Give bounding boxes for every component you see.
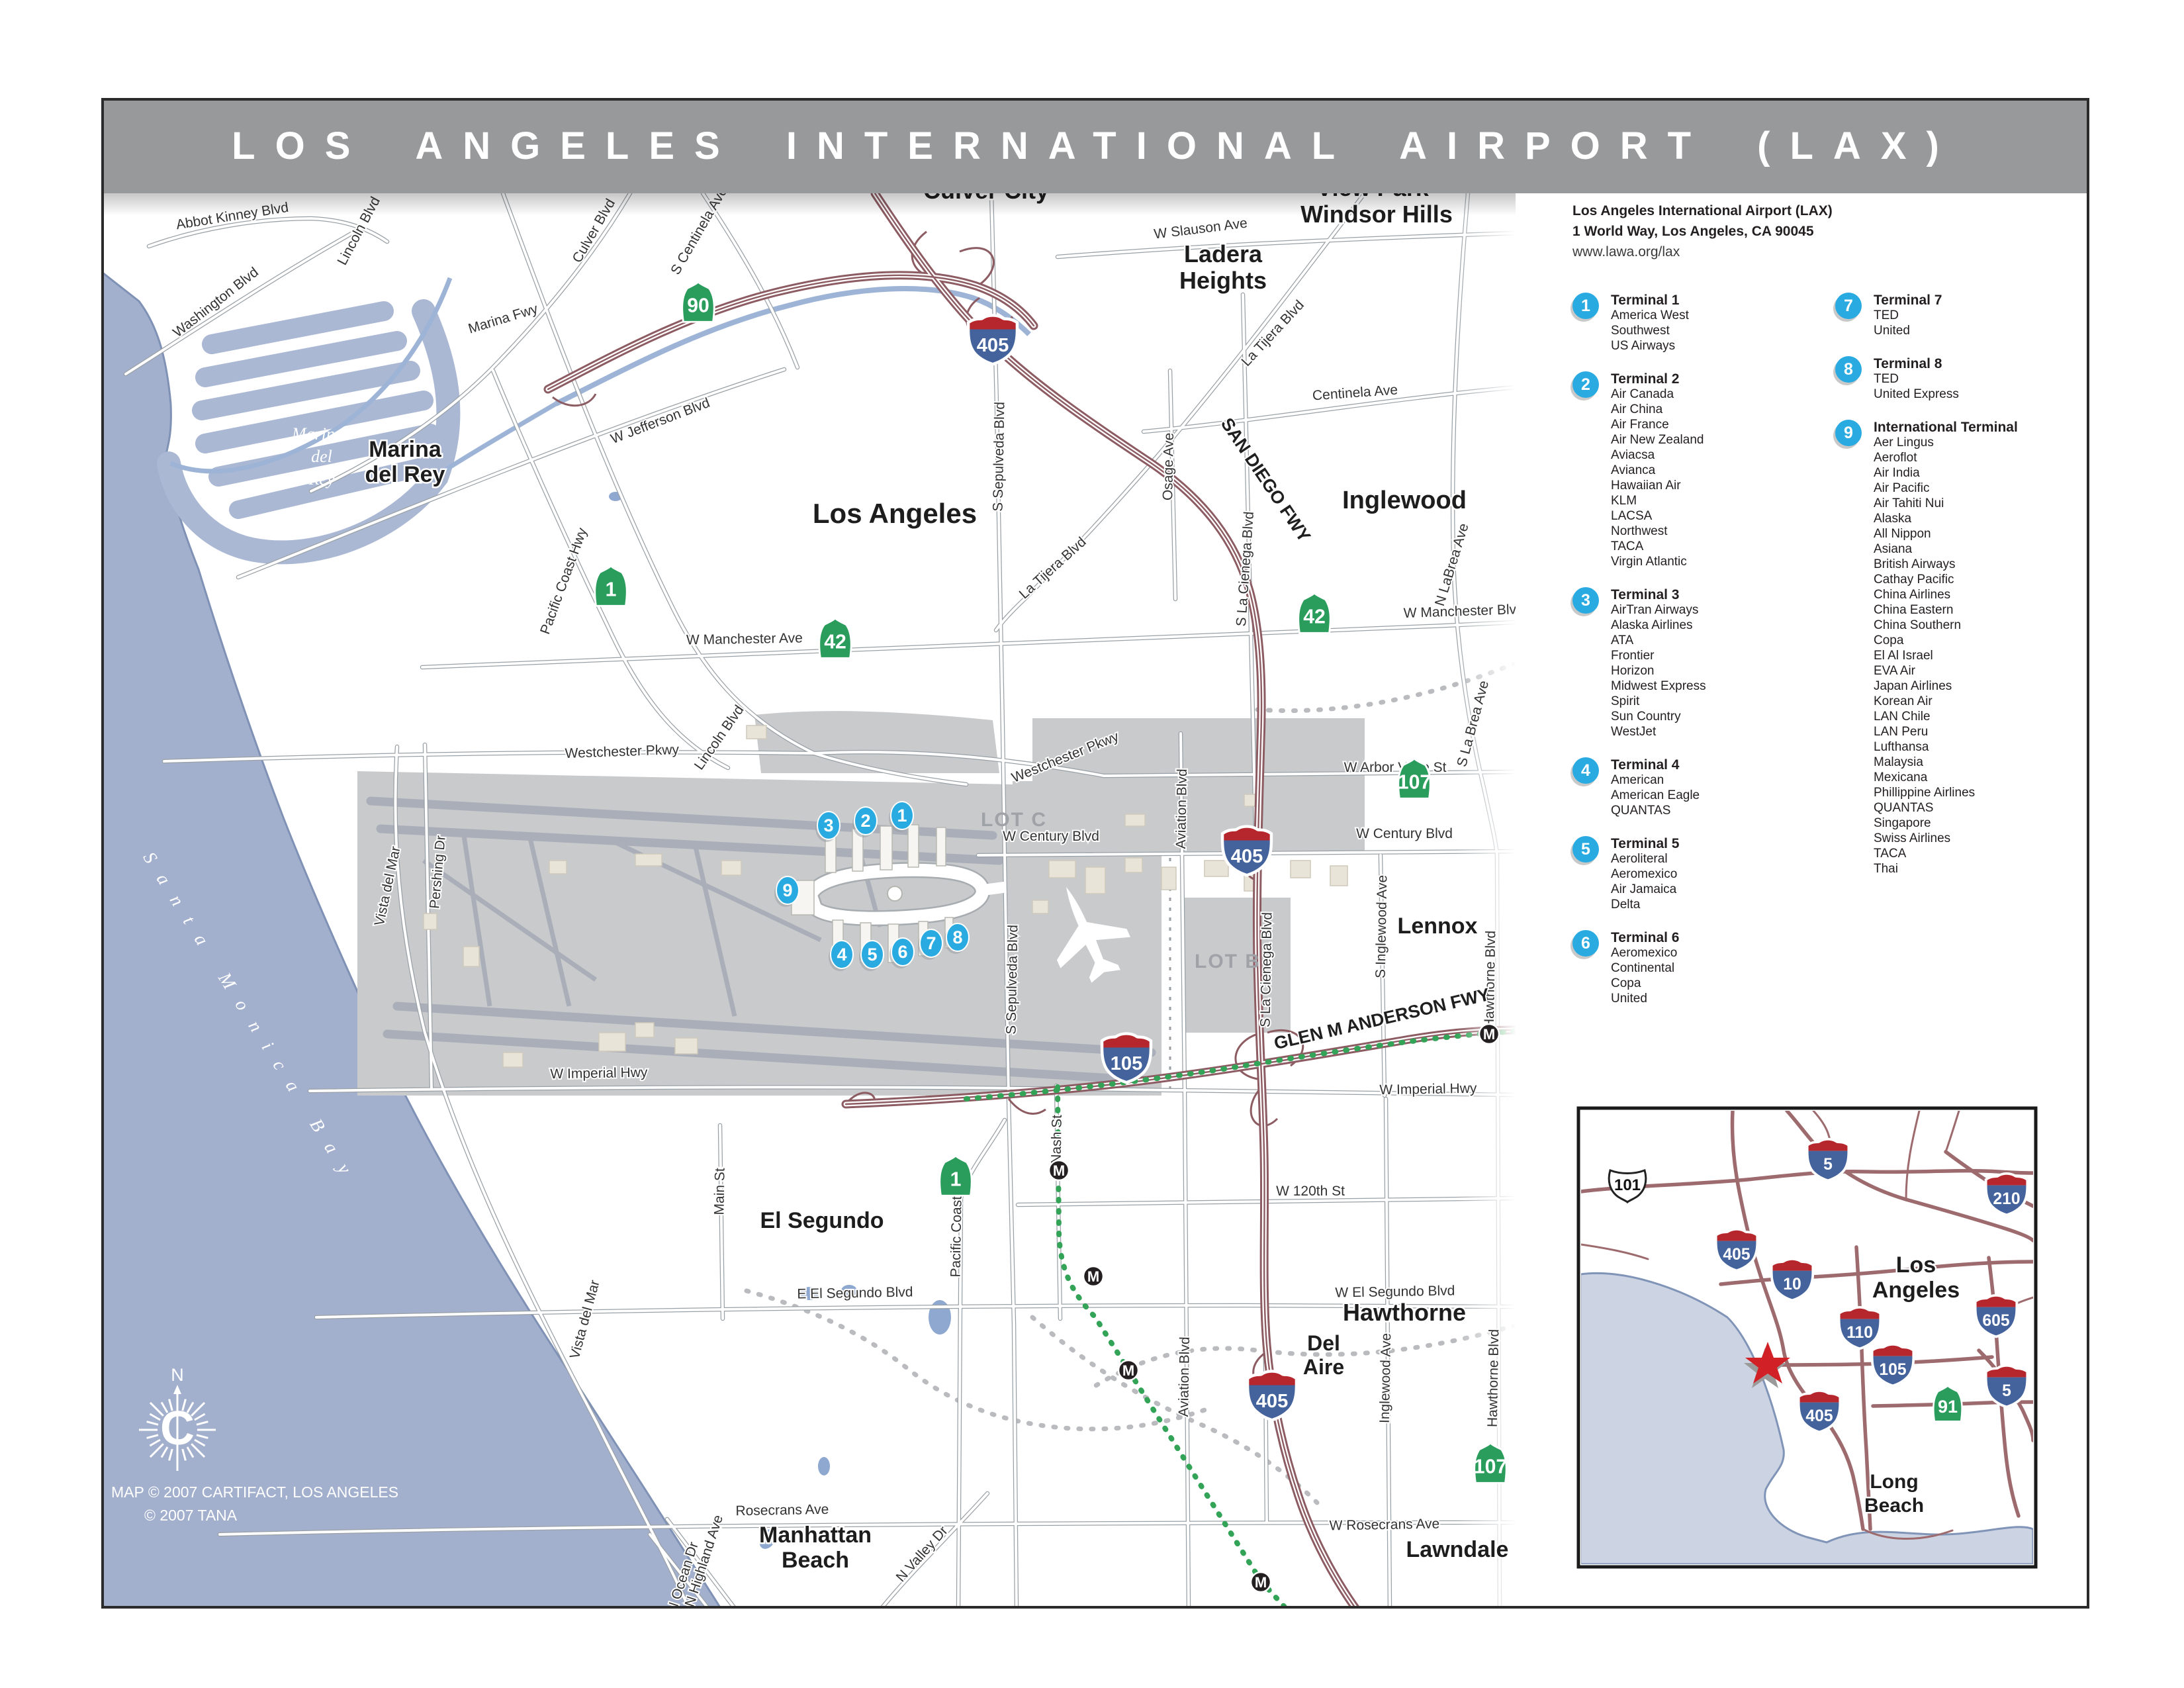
street-label: Main St — [711, 1168, 727, 1215]
street-label: Culver Blvd — [570, 197, 619, 265]
street-label: W Century Blvd — [1003, 829, 1099, 844]
airline-name: Aer Lingus — [1874, 435, 2018, 450]
airline-name: Avianca — [1611, 463, 1704, 478]
terminal-marker-number: 5 — [867, 945, 877, 964]
terminal-name: Terminal 8 — [1874, 356, 1959, 371]
interstate-shield: 405 — [1800, 1392, 1839, 1431]
airport-website: www.lawa.org/lax — [1572, 242, 1833, 262]
creeks — [171, 278, 1029, 475]
terminal-info: Terminal 4AmericanAmerican EagleQUANTAS — [1611, 757, 1700, 818]
airline-name: WestJet — [1611, 724, 1706, 739]
airline-name: Air China — [1611, 402, 1704, 417]
street-label: W Arbor Vitae St — [1344, 760, 1447, 775]
street-label: N Highland Ave — [682, 1513, 726, 1609]
metro-station: M — [1479, 1024, 1499, 1044]
street-label: W Slauson Ave — [1153, 215, 1248, 242]
airline-name: British Airways — [1874, 557, 2018, 572]
shield-number: 90 — [687, 295, 709, 316]
airline-name: TACA — [1611, 539, 1704, 554]
freeways — [548, 193, 1516, 1610]
terminal-name: Terminal 3 — [1611, 587, 1706, 602]
street-label: S La Cienega Blvd — [1234, 511, 1257, 627]
terminal-markers: 123456789 — [774, 802, 969, 971]
airline-name: Thai — [1874, 861, 2018, 876]
airline-name: Malaysia — [1874, 755, 2018, 770]
street-label: Inglewood Ave — [1377, 1333, 1394, 1424]
airline-name: Air France — [1611, 417, 1704, 432]
shield-number: 5 — [1823, 1156, 1833, 1174]
state-route-shield: 107 — [1474, 1444, 1507, 1482]
inset-city-label: Angeles — [1872, 1278, 1960, 1303]
metro-station-letter: M — [1122, 1362, 1134, 1379]
shield-number: 107 — [1398, 771, 1431, 793]
airplane-icon — [1031, 871, 1141, 992]
terminal-entry: 8Terminal 8TEDUnited Express — [1835, 356, 2080, 402]
airline-name: Alaska Airlines — [1611, 618, 1706, 633]
city-label: Windsor Hills — [1300, 201, 1453, 228]
terminal-info: Terminal 5AeroliteralAeromexicoAir Jamai… — [1611, 836, 1679, 912]
terminal-entry: 2Terminal 2Air CanadaAir ChinaAir France… — [1572, 371, 1817, 569]
metro-station: M — [1251, 1572, 1271, 1592]
airline-name: Copa — [1611, 976, 1679, 991]
freeway-ramps — [553, 232, 1303, 1390]
metro-station: M — [1118, 1360, 1138, 1380]
inset-roads — [1581, 1111, 2033, 1539]
terminal-entry: 7Terminal 7TEDUnited — [1835, 293, 2080, 338]
airline-name: Cathay Pacific — [1874, 572, 2018, 587]
airline-name: Aeroliteral — [1611, 851, 1679, 867]
airline-name: El Al Israel — [1874, 648, 2018, 663]
city-label: Hawthorne — [1343, 1299, 1466, 1326]
metro-line — [966, 1031, 1516, 1610]
street-label: Pershing Dr — [427, 835, 449, 909]
airline-name: Aeromexico — [1611, 867, 1679, 882]
street-label: Vista del Mar — [567, 1278, 603, 1360]
airline-name: Southwest — [1611, 323, 1689, 338]
airline-name: Air Pacific — [1874, 481, 2018, 496]
inset-map: LosAngelesLongBeach 54051021011060510554… — [1578, 1108, 2036, 1567]
street-label: W Imperial Hwy — [550, 1065, 648, 1082]
parking-lot-label: LOT C — [981, 809, 1047, 831]
street-label: N LaBrea Ave — [1432, 522, 1472, 608]
street-label: Hawthorne Blvd — [1482, 931, 1499, 1029]
sidebar-info: Los Angeles International Airport (LAX) … — [1572, 201, 1833, 262]
interstate-shield: 405 — [1717, 1231, 1756, 1270]
street-label: Pacific Coast Hwy — [537, 526, 590, 636]
terminal-marker-number: 4 — [837, 945, 846, 964]
street-label: W Jefferson Blvd — [609, 395, 712, 447]
shield-number: 101 — [1614, 1176, 1641, 1194]
city-label: El Segundo — [760, 1208, 884, 1233]
boundaries — [747, 663, 1516, 1503]
airline-name: Air Jamaica — [1611, 882, 1679, 897]
shield-number: 405 — [1256, 1391, 1289, 1412]
water-label: del — [311, 447, 332, 466]
metro-station-letter: M — [1053, 1162, 1065, 1179]
airline-name: Air New Zealand — [1611, 432, 1704, 447]
airline-name: Phillippine Airlines — [1874, 785, 2018, 800]
terminal-marker-number: 1 — [897, 806, 907, 825]
terminal-number-badge: 8 — [1835, 356, 1862, 383]
city-label: del Rey — [365, 462, 445, 487]
terminal-entry: 1Terminal 1America WestSouthwestUS Airwa… — [1572, 293, 1817, 353]
airline-name: United Express — [1874, 387, 1959, 402]
copyright-line1: MAP © 2007 CARTIFACT, LOS ANGELES — [111, 1483, 398, 1501]
lot-labels: LOT CLOT B — [981, 809, 1261, 972]
street-label: Marina Fwy — [467, 301, 540, 337]
shield-number: 605 — [1982, 1312, 2009, 1330]
interstate-shield: 105 — [1103, 1035, 1149, 1081]
airline-name: Sun Country — [1611, 709, 1706, 724]
street-label: E El Segundo Blvd — [797, 1284, 913, 1301]
street-label: Centinela Ave — [1312, 383, 1398, 404]
terminal-marker: 9 — [774, 876, 799, 907]
street-label: Lincoln Blvd — [335, 195, 383, 268]
interstate-shield: 405 — [1249, 1373, 1295, 1419]
terminal-marker-number: 8 — [952, 927, 962, 947]
street-label: La Tijera Blvd — [1017, 534, 1089, 602]
street-label: W El Segundo Blvd — [1335, 1283, 1455, 1300]
airline-name: China Southern — [1874, 618, 2018, 633]
street-label: S Sepul­veda Blvd — [991, 402, 1008, 512]
metro-station: M — [1083, 1266, 1103, 1286]
terminal-name: Terminal 5 — [1611, 836, 1679, 851]
airline-name: Air India — [1874, 465, 2018, 481]
shield-number: 42 — [1303, 606, 1326, 628]
street-label: W Manchester Blvd — [1403, 602, 1524, 621]
terminal-name: Terminal 4 — [1611, 757, 1700, 773]
terminal-info: Terminal 8TEDUnited Express — [1874, 356, 1959, 402]
street-label: W Manchester Ave — [686, 630, 803, 647]
inset-city-label: Beach — [1864, 1495, 1924, 1517]
roads — [126, 193, 1516, 1610]
interstate-shield: 5 — [1987, 1367, 2026, 1406]
terminal-name: Terminal 1 — [1611, 293, 1689, 308]
airline-name: QUANTAS — [1611, 803, 1700, 818]
terminal-info: Terminal 1America WestSouthwestUS Airway… — [1611, 293, 1689, 353]
airline-name: LAN Chile — [1874, 709, 2018, 724]
terminal-number-badge: 3 — [1572, 587, 1599, 614]
inset-city-label: Los — [1896, 1252, 1936, 1278]
airline-name: Alaska — [1874, 511, 2018, 526]
terminal-entry: 5Terminal 5AeroliteralAeromexicoAir Jama… — [1572, 836, 1817, 912]
city-label: Marina — [369, 437, 442, 462]
city-label: Inglewood — [1342, 487, 1467, 514]
terminal-number-badge: 6 — [1572, 930, 1599, 957]
interstate-shield: 5 — [1809, 1141, 1848, 1180]
water-label: Rey — [308, 469, 335, 489]
airline-name: Horizon — [1611, 663, 1706, 679]
terminal-loop — [811, 870, 1006, 918]
us-route-shield: 101 — [1609, 1170, 1646, 1202]
airline-name: Delta — [1611, 897, 1679, 912]
airline-name: United — [1874, 323, 1942, 338]
shield-number: 405 — [1231, 846, 1263, 867]
airline-name: Aeromexico — [1611, 945, 1679, 961]
street-label: Osage Ave — [1160, 433, 1177, 501]
terminal-info: Terminal 7TEDUnited — [1874, 293, 1942, 338]
airline-name: Copa — [1874, 633, 2018, 648]
shield-number: 110 — [1846, 1324, 1873, 1342]
street-label: S La Cienega Blvd — [1257, 912, 1275, 1027]
shield-number: 405 — [1723, 1246, 1750, 1264]
city-label: Beach — [782, 1548, 849, 1573]
titlebar-shadow — [104, 193, 1516, 216]
bay-label: Santa Monica Bay — [139, 849, 363, 1191]
terminal-marker-number: 6 — [897, 942, 907, 962]
airline-name: Midwest Express — [1611, 679, 1706, 694]
airline-name: Swiss Airlines — [1874, 831, 2018, 846]
metro-station-letter: M — [1087, 1268, 1099, 1285]
airline-name: Virgin Atlantic — [1611, 554, 1704, 569]
airline-name: Korean Air — [1874, 694, 2018, 709]
airline-name: TACA — [1874, 846, 2018, 861]
city-label: Ladera — [1184, 240, 1263, 267]
terminal-marker: 2 — [852, 807, 877, 837]
airport-address: 1 World Way, Los Angeles, CA 90045 — [1572, 221, 1833, 242]
street-label: Hawthorne Blvd — [1485, 1329, 1502, 1428]
compass-logo: C — [160, 1402, 195, 1455]
terminal-marker: 4 — [829, 941, 853, 971]
street-label: GLEN M ANDERSON FWY — [1272, 984, 1492, 1053]
parking-lot-label: LOT B — [1195, 951, 1261, 972]
airline-name: Mexicana — [1874, 770, 2018, 785]
interstate-shield: 110 — [1841, 1309, 1880, 1348]
shield-number: 105 — [1879, 1361, 1906, 1379]
street-label: Vista del Mar — [372, 845, 404, 927]
shield-number: 405 — [977, 335, 1009, 356]
terminal-marker: 8 — [944, 923, 969, 954]
airline-name: America West — [1611, 308, 1689, 323]
terminal-info: Terminal 3AirTran AirwaysAlaska Airlines… — [1611, 587, 1706, 739]
airport-area — [357, 711, 1365, 1096]
airline-name: Northwest — [1611, 524, 1704, 539]
metro-station: M — [1049, 1160, 1069, 1180]
airline-name: Continental — [1611, 961, 1679, 976]
terminal-marker-number: 2 — [860, 811, 870, 831]
airline-name: Frontier — [1611, 648, 1706, 663]
airport-name: Los Angeles International Airport (LAX) — [1572, 201, 1833, 221]
city-label: Lennox — [1398, 914, 1478, 939]
airline-name: American Eagle — [1611, 788, 1700, 803]
main-map: C N MAP © 2007 CARTIFACT, LOS ANGELES © … — [103, 174, 1524, 1615]
terminal-name: Terminal 2 — [1611, 371, 1704, 387]
interstate-shield: 405 — [1224, 828, 1269, 874]
interstate-shield: 605 — [1977, 1297, 2016, 1336]
street-label: Pacific Coast Hwy — [948, 1165, 966, 1278]
ponds — [609, 492, 951, 1552]
inset-city-labels: LosAngelesLongBeach — [1864, 1252, 1960, 1517]
street-label: W Rosecrans Ave — [1329, 1517, 1439, 1534]
shield-number: 210 — [1993, 1190, 2020, 1208]
interstate-shield: 10 — [1773, 1260, 1812, 1299]
airline-name: LAN Peru — [1874, 724, 2018, 739]
state-route-shield: 107 — [1398, 760, 1431, 798]
shield-number: 42 — [824, 631, 846, 653]
street-label: N Ocean Dr — [664, 1540, 702, 1615]
inset-ocean — [1580, 1273, 2033, 1564]
shield-number: 1 — [950, 1168, 962, 1190]
terminal-number-badge: 7 — [1835, 293, 1862, 319]
map-right-fade — [1456, 193, 1517, 1607]
airline-name: American — [1611, 773, 1700, 788]
airline-name: TED — [1874, 371, 1959, 387]
terminal-entry: 3Terminal 3AirTran AirwaysAlaska Airline… — [1572, 587, 1817, 739]
airline-name: Spirit — [1611, 694, 1706, 709]
street-label: S Sepulveda Blvd — [1004, 925, 1021, 1035]
terminal-info: Terminal 2Air CanadaAir ChinaAir FranceA… — [1611, 371, 1704, 569]
street-label: SAN DIEGO FWY — [1217, 414, 1314, 545]
street-label: Washington Blvd — [170, 265, 261, 341]
street-label: S Inglewood Ave — [1373, 875, 1390, 978]
terminal-marker-number: 9 — [782, 880, 792, 900]
street-label: S La Brea Ave — [1454, 679, 1492, 769]
terminal-number-badge: 1 — [1572, 293, 1599, 319]
marina-water — [169, 311, 448, 552]
page-title: LOS ANGELES INTERNATIONAL AIRPORT (LAX) — [103, 99, 2088, 193]
street-label: Westchester Pkwy — [565, 742, 680, 761]
compass: C N — [139, 1365, 216, 1471]
inset-shields: 540510210110605105540510191 — [1609, 1141, 2026, 1431]
street-label: N Valley Dr — [893, 1523, 951, 1585]
airline-name: Aviacsa — [1611, 447, 1704, 463]
interstate-shield: 210 — [1987, 1175, 2026, 1214]
shield-number: 91 — [1938, 1397, 1958, 1417]
shield-number: 105 — [1111, 1053, 1143, 1074]
water-labels: MarinadelRey — [291, 424, 343, 489]
compass-north-label: N — [171, 1365, 184, 1385]
street-label: W Century Blvd — [1356, 826, 1453, 841]
street-label: La Tijera Blvd — [1238, 297, 1307, 369]
terminal-entry: 6Terminal 6AeromexicoContinentalCopaUnit… — [1572, 930, 1817, 1006]
city-label: Heights — [1179, 267, 1267, 294]
terminal-list-left: 1Terminal 1America WestSouthwestUS Airwa… — [1572, 293, 1817, 1024]
buildings — [424, 726, 1347, 1067]
terminal-number-badge: 4 — [1572, 757, 1599, 784]
ocean — [103, 273, 720, 1607]
airline-name: ATA — [1611, 633, 1706, 648]
city-label: Aire — [1303, 1355, 1344, 1379]
shield-number: 10 — [1783, 1276, 1801, 1293]
airline-name: Air Canada — [1611, 387, 1704, 402]
state-route-shield: 1 — [596, 567, 626, 605]
city-labels: Culver CityView Park-Windsor HillsLadera… — [365, 174, 1509, 1573]
bay-label: Santa Monica Bay — [139, 849, 363, 1191]
terminal-name: International Terminal — [1874, 420, 2018, 435]
airline-name: TED — [1874, 308, 1942, 323]
terminal-marker: 1 — [889, 802, 913, 832]
street-label: Rosecrans Ave — [735, 1502, 829, 1519]
interstate-shield: 105 — [1874, 1346, 1913, 1385]
terminal-name: Terminal 6 — [1611, 930, 1679, 945]
terminal-marker-number: 3 — [823, 816, 833, 835]
street-labels: Abbot Kinney BlvdWashington BlvdMarina F… — [170, 184, 1524, 1615]
airline-name: QUANTAS — [1874, 800, 2018, 816]
state-route-shield: 91 — [1934, 1387, 1962, 1421]
city-label: Del — [1307, 1331, 1340, 1355]
terminal-number-badge: 9 — [1835, 420, 1862, 446]
airline-name: Asiana — [1874, 541, 2018, 557]
street-label: W Imperial Hwy — [1379, 1081, 1477, 1098]
metro-stations: MMMMM — [1049, 1024, 1499, 1592]
street-label: Westchester Pkwy — [1009, 729, 1121, 786]
airline-name: Hawaiian Air — [1611, 478, 1704, 493]
airline-name: Japan Airlines — [1874, 679, 2018, 694]
terminal-marker: 3 — [815, 812, 840, 842]
inset-star — [1744, 1342, 1790, 1388]
street-label: Aviation Blvd — [1173, 769, 1190, 849]
airline-name: All Nippon — [1874, 526, 2018, 541]
metro-station-letter: M — [1255, 1574, 1267, 1591]
terminal-entry: 4Terminal 4AmericanAmerican EagleQUANTAS — [1572, 757, 1817, 818]
terminal-marker: 7 — [918, 929, 942, 960]
city-label: Manhattan — [759, 1523, 872, 1548]
lax-map-page: LOS ANGELES INTERNATIONAL AIRPORT (LAX) … — [0, 0, 2184, 1688]
terminal-name: Terminal 7 — [1874, 293, 1942, 308]
street-label: W 120th St — [1276, 1184, 1345, 1199]
airline-name: EVA Air — [1874, 663, 2018, 679]
terminal-number-badge: 5 — [1572, 836, 1599, 863]
copyright-line2: © 2007 TANA — [144, 1507, 238, 1524]
airline-name: United — [1611, 991, 1679, 1006]
shield-number: 107 — [1474, 1456, 1507, 1477]
airline-name: China Airlines — [1874, 587, 2018, 602]
airline-name: Lufthansa — [1874, 739, 2018, 755]
shield-number: 1 — [606, 579, 617, 600]
inset-city-label: Long — [1870, 1471, 1918, 1493]
terminal-marker-number: 7 — [926, 933, 936, 953]
terminal-marker: 5 — [859, 941, 884, 971]
airline-name: US Airways — [1611, 338, 1689, 353]
interstate-shield: 405 — [970, 317, 1015, 363]
terminal-entry: 9International TerminalAer LingusAeroflo… — [1835, 420, 2080, 876]
street-label: Lincoln Blvd — [692, 702, 747, 773]
title-bar: LOS ANGELES INTERNATIONAL AIRPORT (LAX) — [103, 99, 2088, 193]
shield-number: 405 — [1805, 1407, 1833, 1425]
airline-name: China Eastern — [1874, 602, 2018, 618]
shield-number: 5 — [2002, 1382, 2011, 1400]
state-route-shield: 90 — [683, 283, 713, 321]
state-route-shield: 1 — [940, 1157, 971, 1195]
metro-station-letter: M — [1483, 1026, 1495, 1043]
state-route-shield: 42 — [1299, 594, 1330, 632]
airline-name: Air Tahiti Nui — [1874, 496, 2018, 511]
airline-name: KLM — [1611, 493, 1704, 508]
street-label: Abbot Kinney Blvd — [175, 200, 289, 233]
airline-name: Singapore — [1874, 816, 2018, 831]
terminal-info: Terminal 6AeromexicoContinentalCopaUnite… — [1611, 930, 1679, 1006]
terminal-marker: 6 — [889, 938, 914, 968]
terminal-info: International TerminalAer LingusAeroflot… — [1874, 420, 2018, 876]
city-label: Los Angeles — [813, 498, 977, 529]
runways — [371, 801, 1152, 1080]
terminal-number-badge: 2 — [1572, 371, 1599, 398]
airline-name: LACSA — [1611, 508, 1704, 524]
airline-name: AirTran Airways — [1611, 602, 1706, 618]
street-label: N Nash St — [1048, 1115, 1065, 1178]
terminal-piers — [792, 825, 953, 962]
state-route-shield: 42 — [820, 620, 850, 657]
street-label: Aviation Blvd — [1176, 1336, 1193, 1417]
route-shields: 40540510540590142421071107 — [596, 283, 1507, 1482]
airline-name: Aeroflot — [1874, 450, 2018, 465]
city-label: Lawndale — [1406, 1537, 1509, 1562]
street-label: S Centinela Ave — [668, 184, 730, 277]
water-label: Marina — [291, 424, 343, 444]
terminal-list-right: 7Terminal 7TEDUnited8Terminal 8TEDUnited… — [1835, 293, 2080, 894]
